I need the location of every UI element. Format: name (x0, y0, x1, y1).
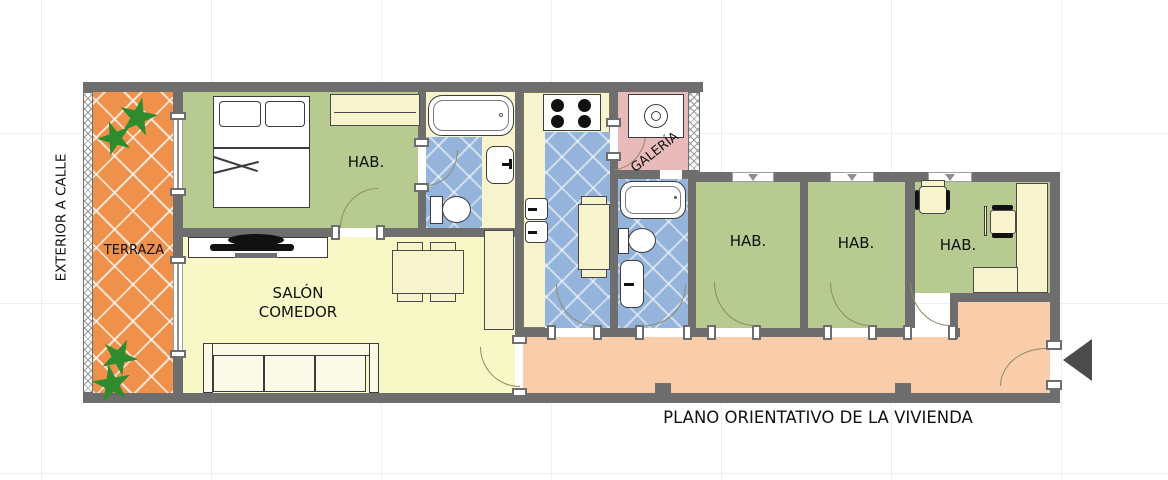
wall-pillar (655, 383, 671, 395)
washing-machine-drum (651, 111, 661, 121)
pillow (219, 101, 261, 127)
terrace-fence (83, 92, 93, 393)
floor-plan-canvas: EXTERIOR A CALLE (0, 0, 1168, 480)
door-arc-bedroom4 (910, 282, 950, 326)
door-opening (660, 170, 682, 179)
cabinet-icon (484, 230, 514, 330)
terraza-label: TERRAZA (96, 243, 172, 258)
burner-icon (551, 99, 564, 112)
armchair-headrest (921, 180, 945, 187)
sofa-arm (203, 343, 213, 393)
faucet-icon (509, 159, 512, 169)
tv-shelf-shadow (235, 253, 277, 258)
door-jamb (512, 335, 527, 344)
kitchen-table-icon (578, 204, 610, 270)
salon-label-line2: COMEDOR (228, 303, 368, 321)
door-opening (553, 328, 595, 337)
burner-icon (578, 115, 591, 128)
door-jamb (606, 118, 621, 127)
faucet-icon (528, 208, 537, 211)
door-jamb (635, 325, 644, 340)
wall (83, 82, 703, 92)
desk-chair-icon (990, 210, 1016, 234)
bedroom-main-label: HAB. (338, 153, 394, 171)
door-jamb (948, 325, 957, 340)
bathtub-inner (625, 186, 681, 214)
window-glazing (177, 120, 179, 188)
wall (515, 92, 523, 342)
window-glazing (177, 264, 179, 350)
window-jamb (170, 350, 186, 358)
bed-sheet-line (214, 147, 309, 149)
kitchen-chair-icon (581, 269, 607, 278)
door-jamb (868, 325, 877, 340)
dining-chair-icon (397, 293, 423, 302)
burner-icon (551, 115, 564, 128)
door-opening (830, 328, 870, 337)
window-jamb (170, 256, 186, 264)
entrance-arrow-icon (1063, 339, 1092, 381)
door-jamb (1046, 340, 1062, 350)
door-opening (910, 328, 950, 337)
salon-label-line1: SALÓN (228, 284, 368, 302)
sofa-icon (315, 355, 366, 392)
toilet-icon (628, 228, 656, 253)
door-opening (418, 142, 426, 186)
entrance-hall (958, 302, 1050, 342)
door-jamb (1046, 380, 1062, 390)
sofa-icon (264, 355, 315, 392)
door-jamb (903, 325, 912, 340)
desk-icon (1016, 183, 1048, 293)
sofa-arm (369, 343, 379, 393)
dining-chair-icon (430, 293, 456, 302)
door-opening (338, 228, 378, 237)
window-marker-icon (748, 174, 758, 181)
bathtub-drain (674, 196, 677, 199)
faucet-icon (528, 231, 537, 234)
plan-title: PLANO ORIENTATIVO DE LA VIVIENDA (598, 408, 1038, 427)
wall (905, 182, 915, 337)
door-jamb (331, 225, 340, 240)
door-jamb (752, 325, 761, 340)
corridor (523, 337, 1050, 393)
window-marker-icon (847, 174, 857, 181)
wardrobe-icon (330, 94, 420, 126)
wall-pillar (895, 383, 911, 395)
burner-icon (578, 99, 591, 112)
desk-chair-arm (992, 205, 1013, 210)
desk-chair-side (984, 206, 987, 236)
wall (800, 182, 808, 337)
door-jamb (512, 388, 527, 397)
exterior-street-label: EXTERIOR A CALLE (54, 133, 71, 303)
window-jamb (170, 112, 186, 120)
door-jamb (593, 325, 602, 340)
door-jamb (414, 138, 429, 147)
bedroom2-label: HAB. (718, 232, 778, 250)
tv-icon (210, 244, 294, 251)
faucet-icon (624, 283, 634, 286)
entrance-opening (1050, 347, 1060, 383)
toilet-icon (442, 196, 471, 223)
wall (83, 393, 1060, 403)
door-jamb (547, 325, 556, 340)
bathtub-drain (499, 113, 503, 117)
wall (688, 182, 696, 337)
bathtub-inner (433, 100, 509, 131)
pillow (265, 101, 305, 127)
door-jamb (823, 325, 832, 340)
dining-table-icon (392, 250, 464, 294)
bedroom3-label: HAB. (826, 234, 886, 252)
armchair-arm (915, 190, 919, 210)
door-jamb (707, 325, 716, 340)
armchair-icon (919, 186, 947, 214)
wardrobe-line (334, 112, 416, 113)
bedroom4-label: HAB. (928, 236, 988, 254)
window-jamb (170, 188, 186, 196)
window-marker-icon (945, 174, 955, 181)
desk-icon (973, 267, 1018, 293)
door-jamb (683, 325, 692, 340)
door-opening (714, 328, 754, 337)
armchair-arm (946, 190, 950, 210)
wall (950, 293, 1055, 302)
door-opening (641, 328, 685, 337)
sofa-icon (213, 355, 264, 392)
desk-chair-arm (992, 233, 1013, 238)
